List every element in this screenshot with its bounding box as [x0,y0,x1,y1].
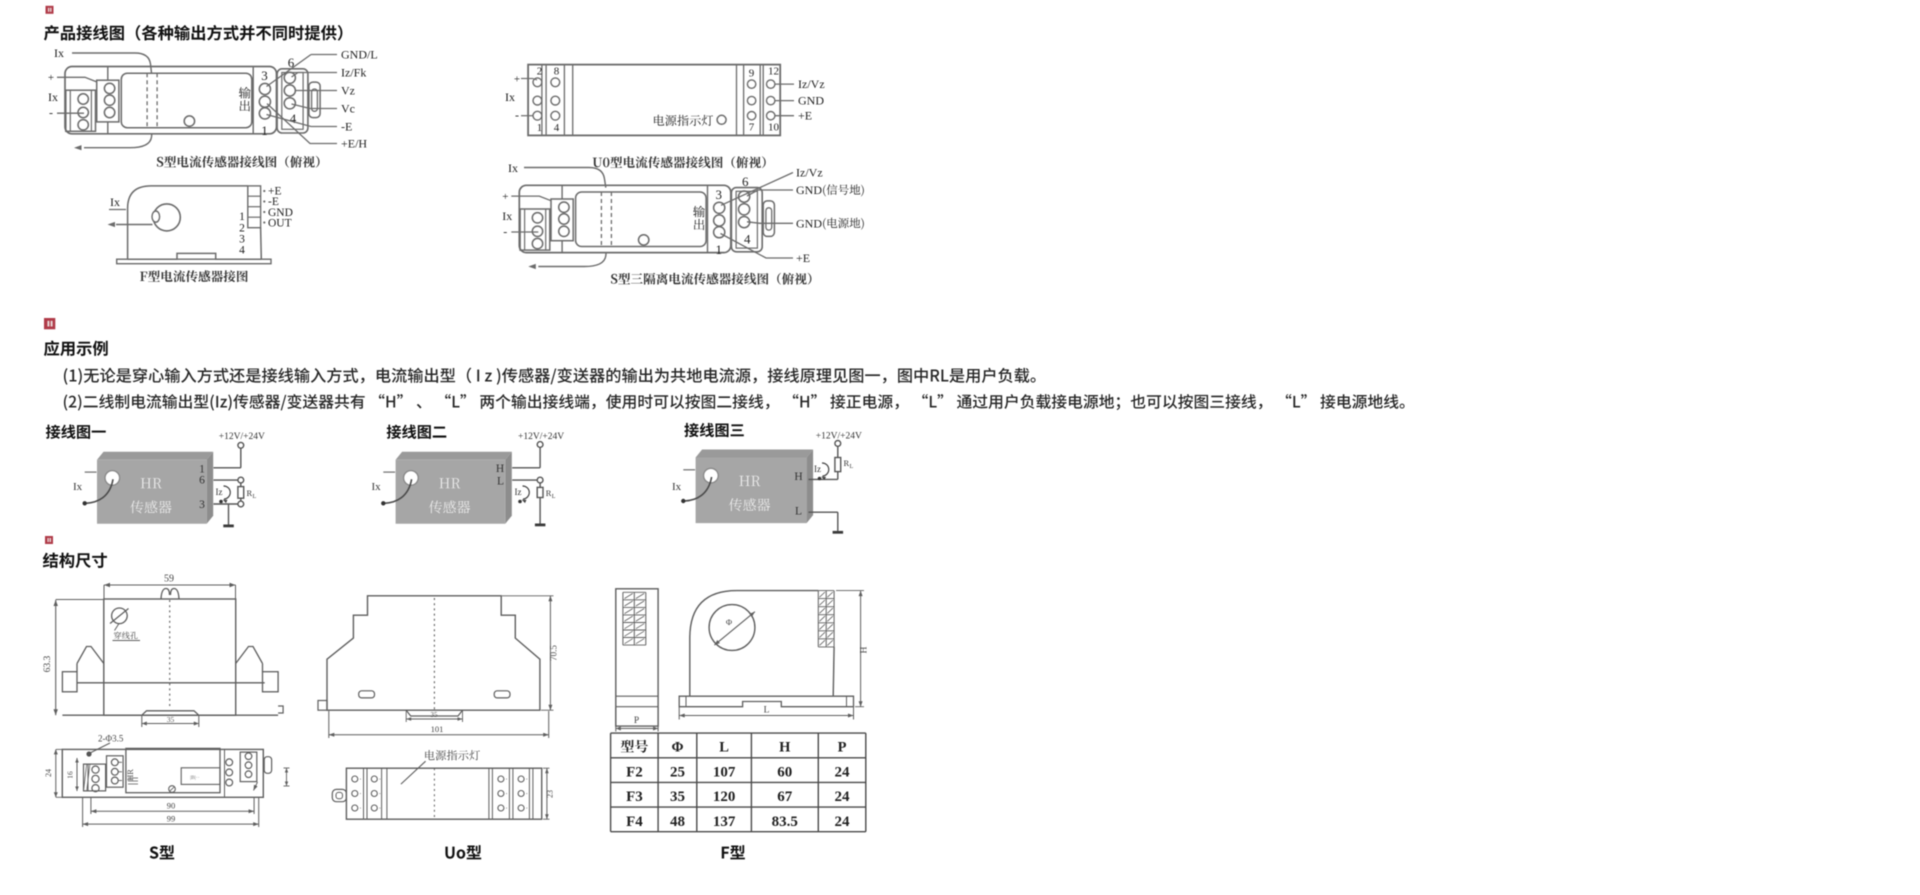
svg-text:1: 1 [537,122,543,134]
svg-text:Ix: Ix [672,481,682,493]
svg-text:12: 12 [768,66,779,78]
svg-text:+E/H: +E/H [341,137,367,151]
svg-text:24: 24 [835,789,851,805]
svg-text:Iz: Iz [216,487,223,497]
svg-text:101: 101 [431,724,444,734]
svg-text:24: 24 [835,765,851,781]
svg-text:4: 4 [290,111,297,126]
svg-text:35: 35 [670,789,685,805]
svg-text:48: 48 [670,814,685,830]
svg-text:23: 23 [546,790,555,798]
svg-text:Ix: Ix [505,90,515,104]
svg-text:·: · [526,805,528,813]
svg-text:1: 1 [239,211,245,223]
svg-text:Φ: Φ [671,740,683,756]
svg-text:+: + [502,191,508,203]
svg-text:L: L [764,706,770,716]
svg-text:L: L [850,464,854,470]
svg-text:L: L [552,494,556,500]
svg-text:2: 2 [537,66,543,78]
svg-text:+E: +E [796,251,810,265]
svg-text:Ix: Ix [372,481,382,493]
svg-text:9: 9 [749,68,755,80]
svg-text:67: 67 [777,789,793,805]
svg-text:H: H [860,646,870,653]
svg-text:L: L [795,506,802,518]
svg-text:4: 4 [744,231,751,246]
svg-text:+: + [514,74,520,86]
svg-text:Ix: Ix [73,481,83,493]
svg-text:·: · [379,776,381,784]
svg-text:137: 137 [713,814,736,830]
svg-text:3: 3 [716,187,723,202]
svg-text:6: 6 [742,174,749,189]
svg-text:GND/L: GND/L [341,48,378,62]
svg-text:·: · [526,790,528,798]
svg-text:6: 6 [288,55,295,70]
svg-text:F2: F2 [626,765,643,781]
svg-text:P: P [634,716,639,726]
svg-text:60: 60 [777,765,792,781]
svg-text:3: 3 [199,499,205,511]
svg-text:Φ: Φ [726,617,732,627]
svg-text:Ix: Ix [48,90,58,104]
svg-text:H: H [794,471,802,483]
svg-text:99: 99 [167,814,176,824]
svg-text:25: 25 [670,765,685,781]
svg-text:4: 4 [239,245,245,257]
svg-text:+12V/+24V: +12V/+24V [518,432,564,442]
svg-text:83.5: 83.5 [772,814,798,830]
svg-text:Vc: Vc [341,102,355,116]
svg-text:H: H [779,740,791,756]
svg-text:1: 1 [716,242,723,257]
svg-text:L: L [253,494,257,500]
svg-text:Iz/Vz: Iz/Vz [796,166,823,180]
svg-text:+E: +E [798,109,812,123]
svg-text:35: 35 [431,711,439,719]
svg-text:Iz/Fk: Iz/Fk [341,66,366,80]
svg-text:59: 59 [164,574,174,585]
svg-text:-: - [503,224,507,238]
svg-text:Ix: Ix [110,195,120,209]
svg-text:+: + [48,72,54,84]
svg-text:F4: F4 [626,814,643,830]
svg-text:·: · [526,776,528,784]
svg-text:63.3: 63.3 [43,655,53,672]
svg-text:24: 24 [44,769,53,777]
svg-text:Ix: Ix [502,209,512,223]
svg-text:·: · [505,776,507,784]
svg-text:·: · [505,805,507,813]
svg-text:6: 6 [199,475,205,487]
svg-text:·: · [359,805,361,813]
svg-text:·: · [379,805,381,813]
svg-text:8: 8 [554,66,560,78]
svg-text:GND: GND [796,216,822,230]
svg-text:OUT: OUT [268,218,292,230]
svg-text:24: 24 [835,814,851,830]
svg-text:-: - [515,108,519,122]
svg-text:+12V/+24V: +12V/+24V [816,432,862,442]
svg-text:4: 4 [554,122,560,134]
svg-text:Ix: Ix [508,161,518,175]
svg-text:70.5: 70.5 [549,645,559,661]
svg-text:P: P [838,740,847,756]
svg-text:Iz: Iz [515,487,522,497]
svg-text:|B|··: |B|·· [190,775,200,781]
svg-text:L: L [497,476,504,488]
svg-text:-E: -E [341,120,352,134]
svg-text:7: 7 [749,122,755,134]
svg-text:H: H [496,463,504,475]
svg-text:120: 120 [713,789,736,805]
svg-text:GND: GND [798,94,824,108]
svg-text:F3: F3 [626,789,643,805]
svg-text:1: 1 [261,123,268,138]
svg-text:90: 90 [167,801,176,811]
svg-text:10: 10 [768,122,780,134]
svg-text:Iz: Iz [814,464,821,474]
svg-text:3: 3 [261,68,268,83]
svg-text:·: · [359,776,361,784]
svg-text:L: L [719,740,729,756]
svg-text:2-Φ3.5: 2-Φ3.5 [98,734,124,744]
svg-text:GND: GND [796,183,822,197]
svg-text:35: 35 [167,715,175,724]
svg-text:Iz/Vz: Iz/Vz [798,77,825,91]
svg-text:+12V/+24V: +12V/+24V [219,432,265,442]
svg-text:·: · [359,790,361,798]
svg-text:107: 107 [713,765,736,781]
svg-text:Ix: Ix [54,46,64,60]
svg-text:Vz: Vz [341,84,355,98]
svg-text:·: · [505,790,507,798]
svg-text:16: 16 [66,771,75,779]
svg-text:·: · [379,790,381,798]
svg-text:-: - [49,106,53,120]
